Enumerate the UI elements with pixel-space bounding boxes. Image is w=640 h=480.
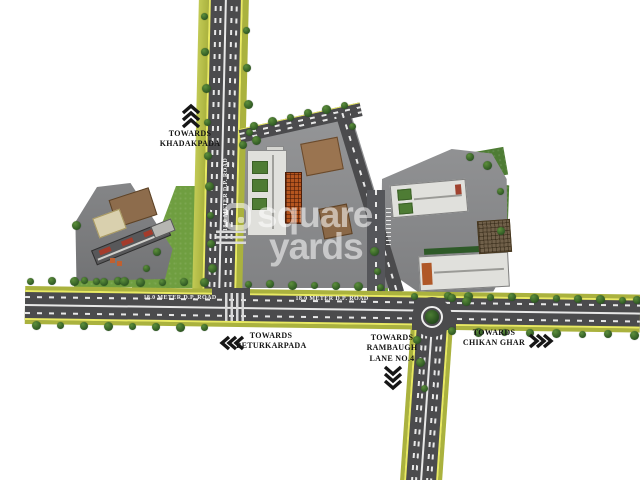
courtyard xyxy=(397,189,412,201)
tree-icon xyxy=(411,293,418,300)
tree-icon xyxy=(448,327,456,335)
tree-icon xyxy=(483,161,492,170)
logo-mark xyxy=(238,217,244,223)
tree-icon xyxy=(630,331,639,340)
tree-icon xyxy=(207,240,215,248)
tree-icon xyxy=(100,278,108,286)
tree-icon xyxy=(448,294,456,302)
tree-icon xyxy=(159,279,166,286)
squareyards-logo-icon xyxy=(224,203,251,230)
tree-icon xyxy=(153,248,161,256)
tree-icon xyxy=(27,278,34,285)
tree-icon xyxy=(104,322,113,331)
tree-icon xyxy=(579,331,586,338)
tree-icon xyxy=(208,264,217,273)
tree-icon xyxy=(204,119,211,126)
chevrons-up-icon xyxy=(180,103,202,130)
tree-icon xyxy=(250,122,258,130)
lane-marking xyxy=(375,190,377,300)
tree-icon xyxy=(245,281,252,288)
tree-icon xyxy=(604,330,612,338)
building-right-slab-a xyxy=(390,179,469,218)
tree-icon xyxy=(152,323,160,331)
tree-icon xyxy=(201,324,208,331)
road-horizontal-main xyxy=(25,286,640,333)
tree-icon xyxy=(288,281,297,290)
tree-icon xyxy=(200,278,209,287)
tree-icon xyxy=(619,297,626,304)
road-vertical-north xyxy=(192,0,249,300)
tree-icon xyxy=(462,297,471,306)
tree-icon xyxy=(201,13,208,20)
tree-icon xyxy=(180,278,188,286)
tree-icon xyxy=(129,323,136,330)
tree-icon xyxy=(207,212,214,219)
tree-icon xyxy=(243,64,251,72)
tree-icon xyxy=(553,295,560,302)
tree-icon xyxy=(72,221,81,230)
watermark-word-2: yards xyxy=(269,228,363,265)
tree-icon xyxy=(176,323,185,332)
tree-icon xyxy=(136,278,145,287)
building-right-slab-b xyxy=(418,252,510,292)
tree-icon xyxy=(204,152,212,160)
tree-icon xyxy=(252,136,261,145)
tree-icon xyxy=(377,284,384,291)
building-left-orange-unit xyxy=(117,261,122,266)
tree-icon xyxy=(239,141,247,149)
tree-icon xyxy=(421,385,428,392)
courtyard xyxy=(398,202,413,214)
site-location-map: 18.0 METER D.P. ROAD 18.0 METER D.P. ROA… xyxy=(0,0,640,480)
crosswalk-vertical xyxy=(216,229,246,244)
tree-icon xyxy=(48,277,56,285)
tree-icon xyxy=(574,295,582,303)
chevrons-right-icon xyxy=(527,333,554,349)
courtyard xyxy=(252,161,268,174)
tree-icon xyxy=(332,282,340,290)
tree-icon xyxy=(143,265,150,272)
tree-icon xyxy=(311,282,318,289)
road-label-east: 18.0 METER D.P. ROAD xyxy=(282,296,382,302)
tree-icon xyxy=(70,277,79,286)
parking-marks xyxy=(386,205,391,245)
tree-icon xyxy=(497,188,504,195)
courtyard xyxy=(252,179,268,192)
tree-icon xyxy=(349,123,356,130)
tree-icon xyxy=(120,277,129,286)
tree-icon xyxy=(201,48,209,56)
tree-icon xyxy=(633,296,640,304)
building-left-orange-unit xyxy=(110,258,115,263)
label-towards-khadakpada: TOWARDS KHADAKPADA xyxy=(148,129,232,150)
tree-icon xyxy=(57,322,64,329)
road-label-west: 18.0 METER D.P. ROAD xyxy=(130,295,230,301)
label-towards-beturkarpada: TOWARDS BETURKARPADA xyxy=(236,331,306,352)
tree-icon xyxy=(243,27,250,34)
roof-line xyxy=(434,268,504,274)
tree-icon xyxy=(370,247,379,256)
label-towards-chikan-ghar: TOWARDS CHIKAN GHAR xyxy=(462,328,526,349)
tree-icon xyxy=(508,293,516,301)
tree-icon xyxy=(202,84,211,93)
tree-icon xyxy=(266,280,274,288)
tree-icon xyxy=(530,294,539,303)
roof-segment xyxy=(455,184,462,194)
tree-icon xyxy=(81,277,88,284)
tree-icon xyxy=(80,322,88,330)
tree-icon xyxy=(304,109,312,117)
tree-icon xyxy=(354,282,363,291)
tree-icon xyxy=(322,105,331,114)
building-right-brown xyxy=(477,219,512,254)
tree-icon xyxy=(596,295,605,304)
tree-icon xyxy=(93,278,100,285)
tree-icon xyxy=(374,268,381,275)
roundabout-tree-icon xyxy=(425,310,439,324)
tree-icon xyxy=(466,153,474,161)
roof-segment xyxy=(422,263,433,285)
tree-icon xyxy=(497,227,505,235)
label-towards-rambaugh: TOWARDS RAMBAUGH LANE NO.4 xyxy=(363,333,421,364)
tree-icon xyxy=(244,100,253,109)
chevrons-down-icon xyxy=(382,364,404,391)
tree-icon xyxy=(205,182,214,191)
tree-icon xyxy=(341,102,348,109)
tree-icon xyxy=(268,117,277,126)
tree-icon xyxy=(32,321,41,330)
tree-icon xyxy=(287,114,294,121)
tree-icon xyxy=(487,294,494,301)
roof-line xyxy=(414,194,462,200)
